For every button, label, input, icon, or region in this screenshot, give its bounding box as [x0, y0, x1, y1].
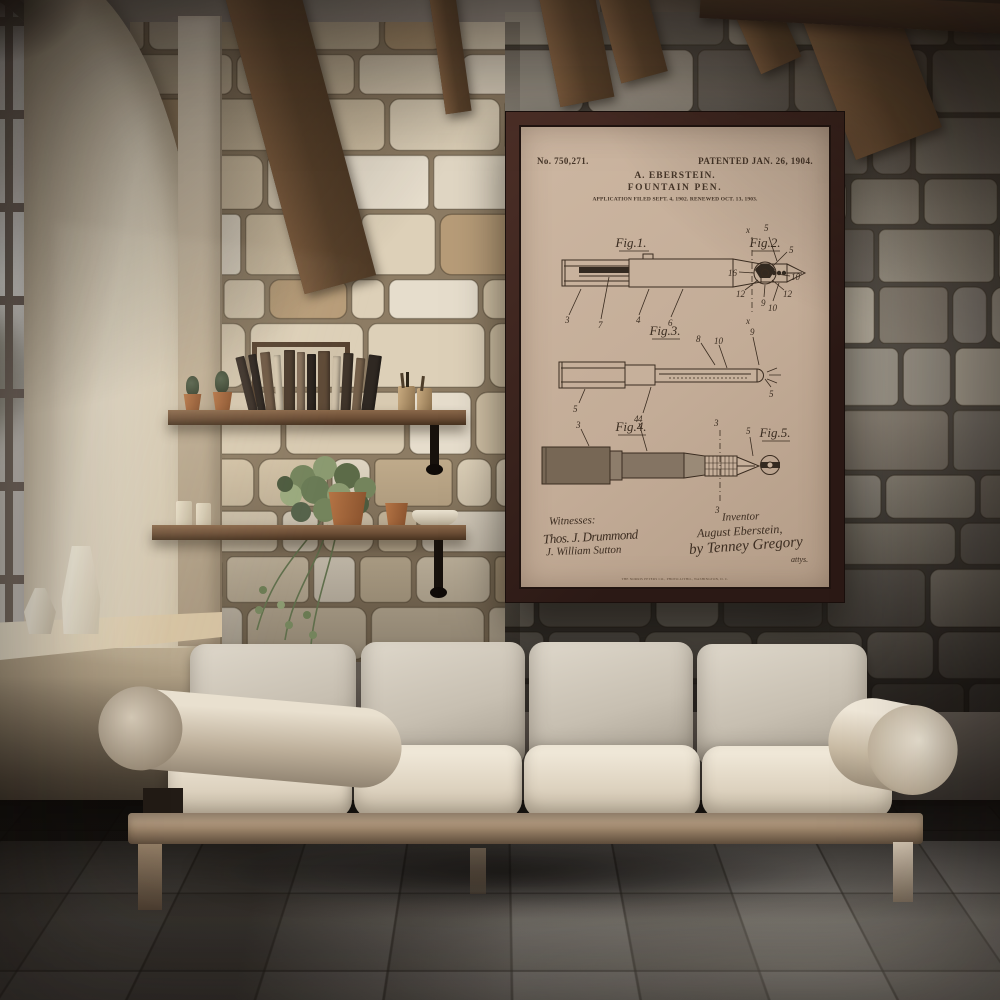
stone: [851, 179, 919, 224]
sofa-leg: [893, 842, 913, 902]
sofa-wood-rail: [128, 813, 923, 844]
svg-text:4: 4: [634, 414, 639, 424]
pencil-cup: [398, 386, 415, 411]
stone: [980, 475, 1000, 518]
book-spine: [297, 352, 305, 412]
stone: [924, 179, 997, 224]
inventor-label: Inventor: [722, 510, 760, 523]
stone: [955, 348, 1000, 405]
svg-text:Fig.2.: Fig.2.: [748, 235, 780, 250]
svg-text:5: 5: [764, 223, 769, 233]
trailing-plant: [233, 440, 423, 655]
stone: [389, 280, 478, 319]
stone: [960, 523, 1000, 564]
svg-text:Fig.3.: Fig.3.: [648, 323, 680, 338]
stone: [930, 569, 1000, 627]
sofa: [95, 630, 960, 920]
stone: [932, 50, 1000, 113]
stone: [457, 459, 491, 506]
stone: [886, 475, 975, 518]
svg-text:3: 3: [714, 505, 720, 515]
svg-text:5: 5: [746, 426, 751, 436]
sofa-leg: [138, 844, 162, 910]
stone: [953, 287, 987, 343]
svg-text:x: x: [745, 225, 750, 235]
shelf-bracket: [434, 540, 443, 594]
patent-poster-paper: No. 750,271. PATENTED JAN. 26, 1904. A. …: [519, 125, 831, 589]
stone: [224, 280, 264, 319]
svg-text:9: 9: [761, 298, 766, 308]
stone: [879, 287, 948, 343]
plant-leaves: [255, 456, 376, 639]
fig3-drawing: Fig.3. 8 10 9 5 5 4: [559, 323, 781, 424]
stone: [879, 229, 994, 282]
fig4-drawing: Fig.4. Fig.5. 3 4: [542, 414, 791, 515]
stone: [416, 557, 490, 603]
cactus: [215, 371, 229, 393]
svg-text:3: 3: [713, 418, 719, 428]
svg-text:4: 4: [636, 315, 641, 325]
cactus: [186, 376, 199, 396]
svg-text:16: 16: [728, 268, 738, 278]
svg-text:9: 9: [750, 327, 755, 337]
room-scene: No. 750,271. PATENTED JAN. 26, 1904. A. …: [0, 0, 1000, 1000]
patent-poster-frame: No. 750,271. PATENTED JAN. 26, 1904. A. …: [505, 111, 845, 603]
stone: [992, 287, 1000, 343]
bolster-armrest-left: [97, 685, 405, 791]
book-row: [242, 346, 402, 412]
wall-shelf-upper: [168, 410, 466, 425]
attorney-suffix: attys.: [791, 555, 808, 564]
shelf-bracket: [430, 425, 439, 471]
svg-text:3: 3: [564, 315, 570, 325]
svg-text:8: 8: [696, 334, 701, 344]
pencil: [406, 372, 409, 387]
stone: [953, 411, 1000, 471]
svg-text:5: 5: [769, 389, 774, 399]
svg-text:x: x: [745, 316, 750, 326]
svg-text:10: 10: [768, 303, 778, 313]
book-spine: [318, 351, 330, 412]
svg-text:5: 5: [573, 404, 578, 414]
svg-text:10: 10: [714, 336, 724, 346]
svg-text:7: 7: [598, 320, 603, 330]
svg-text:Fig.1.: Fig.1.: [614, 235, 646, 250]
printer-line: THE NORRIS PETERS CO., PHOTO-LITHO., WAS…: [589, 578, 761, 581]
svg-text:10: 10: [791, 272, 801, 282]
svg-text:12: 12: [736, 289, 746, 299]
seat-cushion: [524, 745, 700, 818]
plaster-pier: [178, 16, 222, 646]
svg-text:5: 5: [789, 245, 794, 255]
pencil-cup: [417, 388, 432, 411]
stone: [903, 348, 950, 405]
candle: [196, 503, 211, 526]
stone: [969, 684, 1000, 712]
svg-text:3: 3: [575, 420, 581, 430]
book-spine: [331, 356, 341, 412]
svg-text:Fig.5.: Fig.5.: [758, 425, 790, 440]
svg-text:12: 12: [783, 289, 793, 299]
wall-shelf-lower: [152, 525, 466, 540]
sofa-leg: [470, 848, 486, 894]
book-spine: [307, 354, 316, 412]
witnesses-label: Witnesses:: [549, 514, 596, 528]
book-spine: [284, 350, 295, 412]
candle: [176, 501, 192, 526]
stone: [840, 411, 949, 471]
fig5-drawing: [761, 456, 781, 475]
stone: [836, 523, 956, 564]
corner-shadow: [0, 0, 120, 90]
stone: [352, 280, 384, 319]
